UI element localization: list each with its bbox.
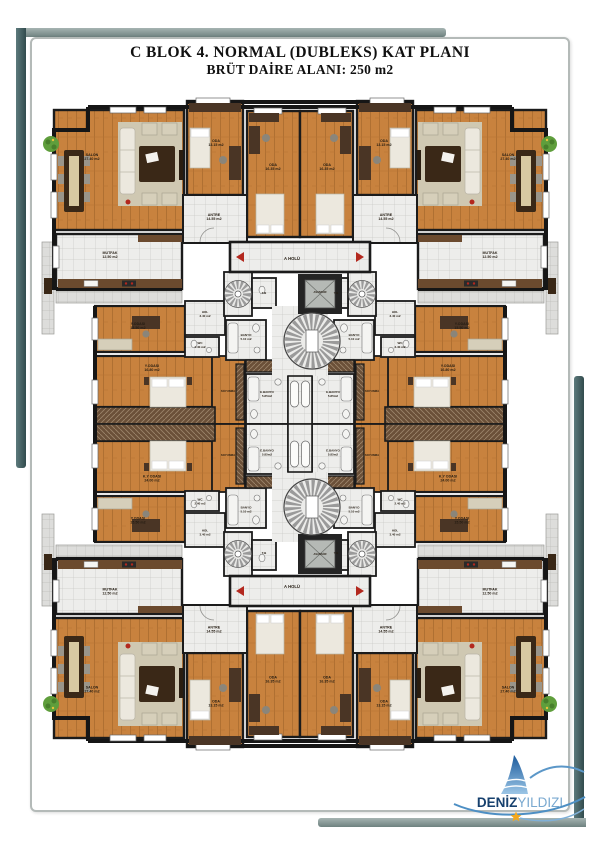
room-label: SALON27.40 m2 <box>84 686 99 694</box>
room-label: SALON27.40 m2 <box>500 686 515 694</box>
room-label: MUTFAK12.50 m2 <box>102 588 117 596</box>
swoosh-tail <box>520 809 584 821</box>
room-label: BANYO5.10 m2 <box>348 506 360 514</box>
page: C BLOK 4. NORMAL (DUBLEKS) KAT PLANI BRÜ… <box>0 0 600 848</box>
room-label: SALON27.40 m2 <box>84 153 99 161</box>
room-label: Y.ODASI16.80 m2 <box>144 364 159 372</box>
title-line1: C BLOK 4. NORMAL (DUBLEKS) KAT PLANI <box>30 44 570 62</box>
sail-icon <box>501 755 528 794</box>
apartments <box>42 98 558 750</box>
room-label: ANTRE14.55 m2 <box>378 626 393 634</box>
room-label: ANTRE14.55 m2 <box>378 213 393 221</box>
brand-wordmark: DENİZYILDIZI <box>477 795 563 810</box>
frame-bar-top <box>24 28 446 37</box>
star-icon <box>511 812 522 822</box>
room-label: Y.ODASI15.50 m2 <box>130 517 145 525</box>
title-line2: BRÜT DAİRE ALANI: 250 m2 <box>30 62 570 78</box>
room-label: A HOLÜ <box>284 584 300 589</box>
room-label: ANTRE14.55 m2 <box>206 626 221 634</box>
room-label: SALON27.40 m2 <box>500 153 515 161</box>
room-label: SOYUNMA <box>221 389 235 393</box>
page-title: C BLOK 4. NORMAL (DUBLEKS) KAT PLANI BRÜ… <box>30 44 570 78</box>
room-label: K.Y ODASI24.00 m2 <box>439 475 457 483</box>
room-label: Y.ODASI15.50 m2 <box>454 517 469 525</box>
brand-logo: DENİZYILDIZI <box>450 752 590 830</box>
room-label: MUTFAK12.50 m2 <box>482 588 497 596</box>
room-label: Y.ODASI15.50 m2 <box>454 322 469 330</box>
room-label: A HOLÜ <box>284 256 300 261</box>
room-label: SOYUNMA <box>221 453 235 457</box>
swoosh-upper <box>530 766 584 778</box>
room-label: SOYUNMA <box>365 389 379 393</box>
room-label: MUTFAK12.50 m2 <box>102 251 117 259</box>
room-label: MUTFAK12.50 m2 <box>482 251 497 259</box>
floor-plan: SALON27.40 m2SALON27.40 m2SALON27.40 m2S… <box>40 94 560 754</box>
room-label: BANYO5.10 m2 <box>240 506 252 514</box>
room-label: SOYUNMA <box>365 453 379 457</box>
room-label: ANTRE14.55 m2 <box>206 213 221 221</box>
room-label: BANYO5.10 m2 <box>348 333 360 341</box>
room-label: K.Y ODASI24.00 m2 <box>143 475 161 483</box>
room-label: Y.ODASI16.80 m2 <box>440 364 455 372</box>
room-label: BANYO5.10 m2 <box>240 333 252 341</box>
frame-bar-left <box>16 28 26 468</box>
room-label: Y.ODASI15.50 m2 <box>130 322 145 330</box>
